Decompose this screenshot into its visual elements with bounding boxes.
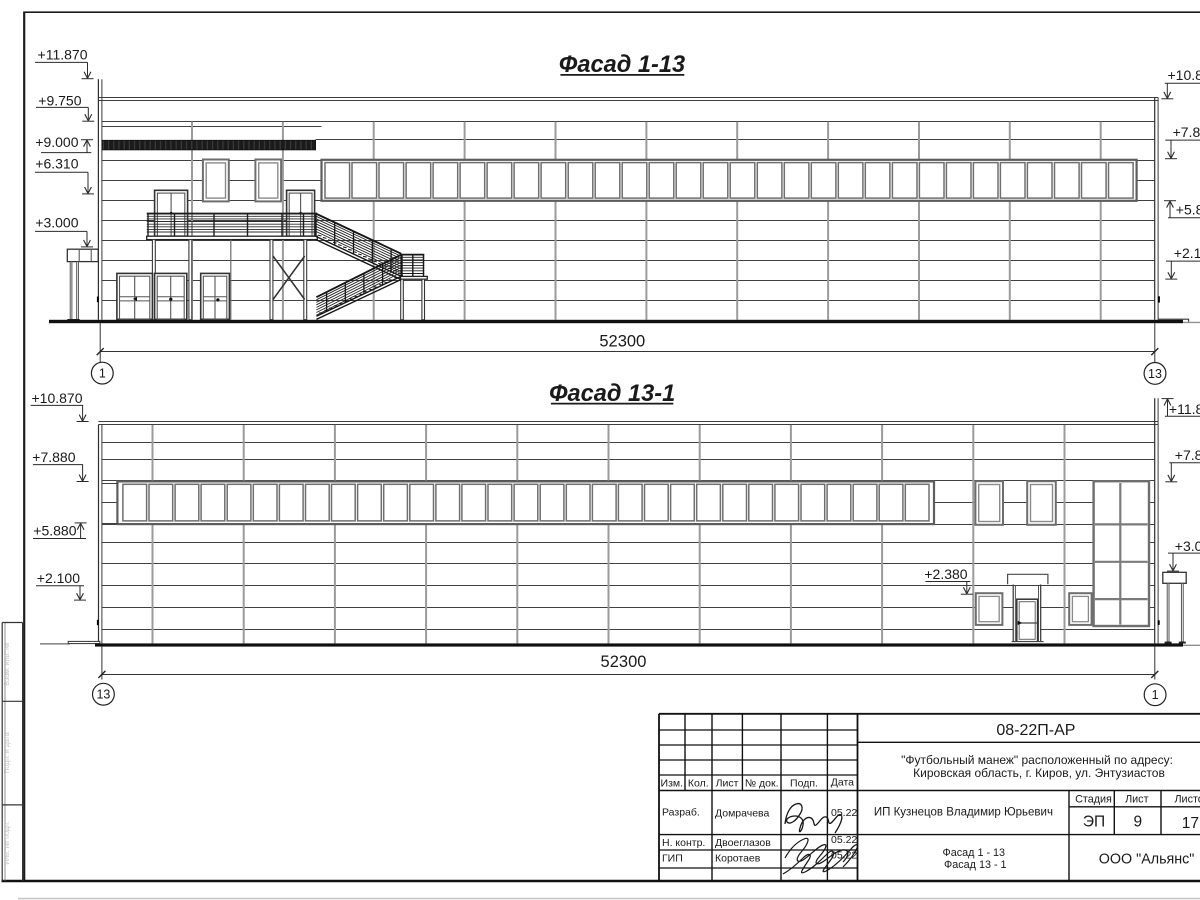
svg-text:+2.380: +2.380 xyxy=(924,566,967,582)
svg-text:52300: 52300 xyxy=(599,333,645,351)
svg-text:+6.310: +6.310 xyxy=(35,155,78,171)
svg-text:Изм.: Изм. xyxy=(661,777,684,789)
svg-text:Взам. инв. №: Взам. инв. № xyxy=(4,642,11,685)
svg-text:Инв. № подл.: Инв. № подл. xyxy=(4,821,11,865)
svg-text:+10.870: +10.870 xyxy=(1168,67,1200,83)
svg-text:ООО "Альянс": ООО "Альянс" xyxy=(1099,851,1195,867)
svg-text:Лист: Лист xyxy=(716,777,739,789)
svg-text:+7.880: +7.880 xyxy=(32,449,75,465)
svg-text:Коротаев: Коротаев xyxy=(715,853,761,865)
svg-text:+2.100: +2.100 xyxy=(37,570,80,586)
svg-text:+5.880: +5.880 xyxy=(33,523,76,539)
svg-text:Н. контр.: Н. контр. xyxy=(662,837,705,849)
svg-text:Подп.: Подп. xyxy=(790,777,818,789)
svg-text:Подп. и дата: Подп. и дата xyxy=(4,732,11,773)
svg-text:13: 13 xyxy=(1148,367,1162,381)
svg-text:№ док.: № док. xyxy=(745,777,779,789)
svg-text:ЭП: ЭП xyxy=(1083,813,1105,830)
svg-text:+9.750: +9.750 xyxy=(38,93,81,109)
svg-text:ГИП: ГИП xyxy=(662,853,683,865)
svg-text:9: 9 xyxy=(1133,813,1142,830)
svg-text:+3.000: +3.000 xyxy=(1175,538,1200,554)
svg-text:Кировская область, г. Киров, у: Кировская область, г. Киров, ул. Энтузиа… xyxy=(913,766,1165,780)
svg-text:ИП Кузнецов Владимир Юрьевич: ИП Кузнецов Владимир Юрьевич xyxy=(874,807,1053,819)
svg-text:+9.000: +9.000 xyxy=(35,134,78,150)
svg-text:Фасад 1 - 13: Фасад 1 - 13 xyxy=(943,847,1006,859)
svg-text:05.22: 05.22 xyxy=(831,834,857,846)
svg-text:+11.870: +11.870 xyxy=(1169,401,1200,417)
svg-text:+2.100: +2.100 xyxy=(1174,245,1200,261)
svg-text:+10.870: +10.870 xyxy=(32,390,83,406)
svg-text:52300: 52300 xyxy=(601,653,647,671)
svg-text:05.22: 05.22 xyxy=(831,807,857,819)
svg-text:Домрачева: Домрачева xyxy=(715,808,770,820)
svg-text:Лист: Лист xyxy=(1125,793,1149,805)
svg-text:+3.000: +3.000 xyxy=(35,215,78,231)
svg-text:+7.880: +7.880 xyxy=(1173,124,1200,140)
svg-text:1: 1 xyxy=(1152,688,1159,702)
svg-text:1: 1 xyxy=(99,367,106,381)
svg-text:+7.880: +7.880 xyxy=(1175,447,1200,463)
svg-text:Листов: Листов xyxy=(1174,793,1200,805)
svg-text:+5.880: +5.880 xyxy=(1176,201,1200,217)
svg-text:Фасад 13 - 1: Фасад 13 - 1 xyxy=(944,859,1007,871)
svg-text:Стадия: Стадия xyxy=(1075,793,1112,805)
svg-text:08-22П-АР: 08-22П-АР xyxy=(996,722,1075,739)
svg-text:+11.870: +11.870 xyxy=(38,46,88,62)
svg-text:Кол.: Кол. xyxy=(688,777,709,789)
svg-text:Разраб.: Разраб. xyxy=(662,806,700,818)
svg-text:13: 13 xyxy=(96,688,110,702)
svg-text:Двоеглазов: Двоеглазов xyxy=(715,837,771,849)
svg-text:17: 17 xyxy=(1182,815,1199,832)
svg-text:"Футбольный манеж" расположенн: "Футбольный манеж" расположенный по адре… xyxy=(901,753,1173,767)
svg-text:Дата: Дата xyxy=(831,777,854,789)
